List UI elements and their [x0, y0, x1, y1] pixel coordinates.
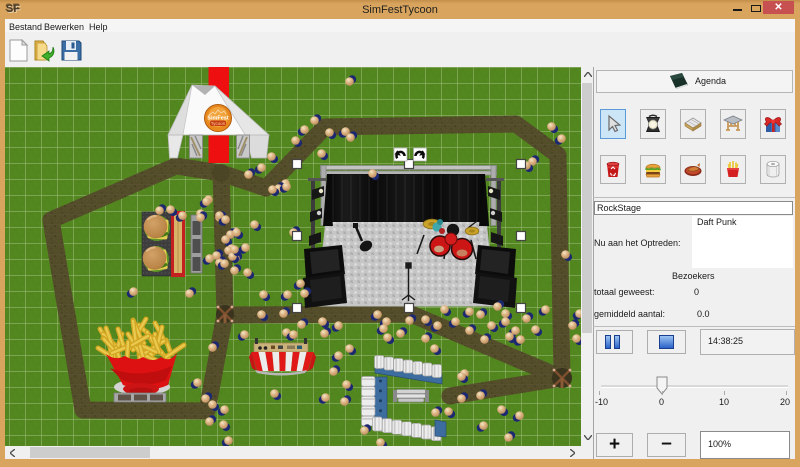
svg-text:Tycoon: Tycoon	[211, 121, 226, 126]
